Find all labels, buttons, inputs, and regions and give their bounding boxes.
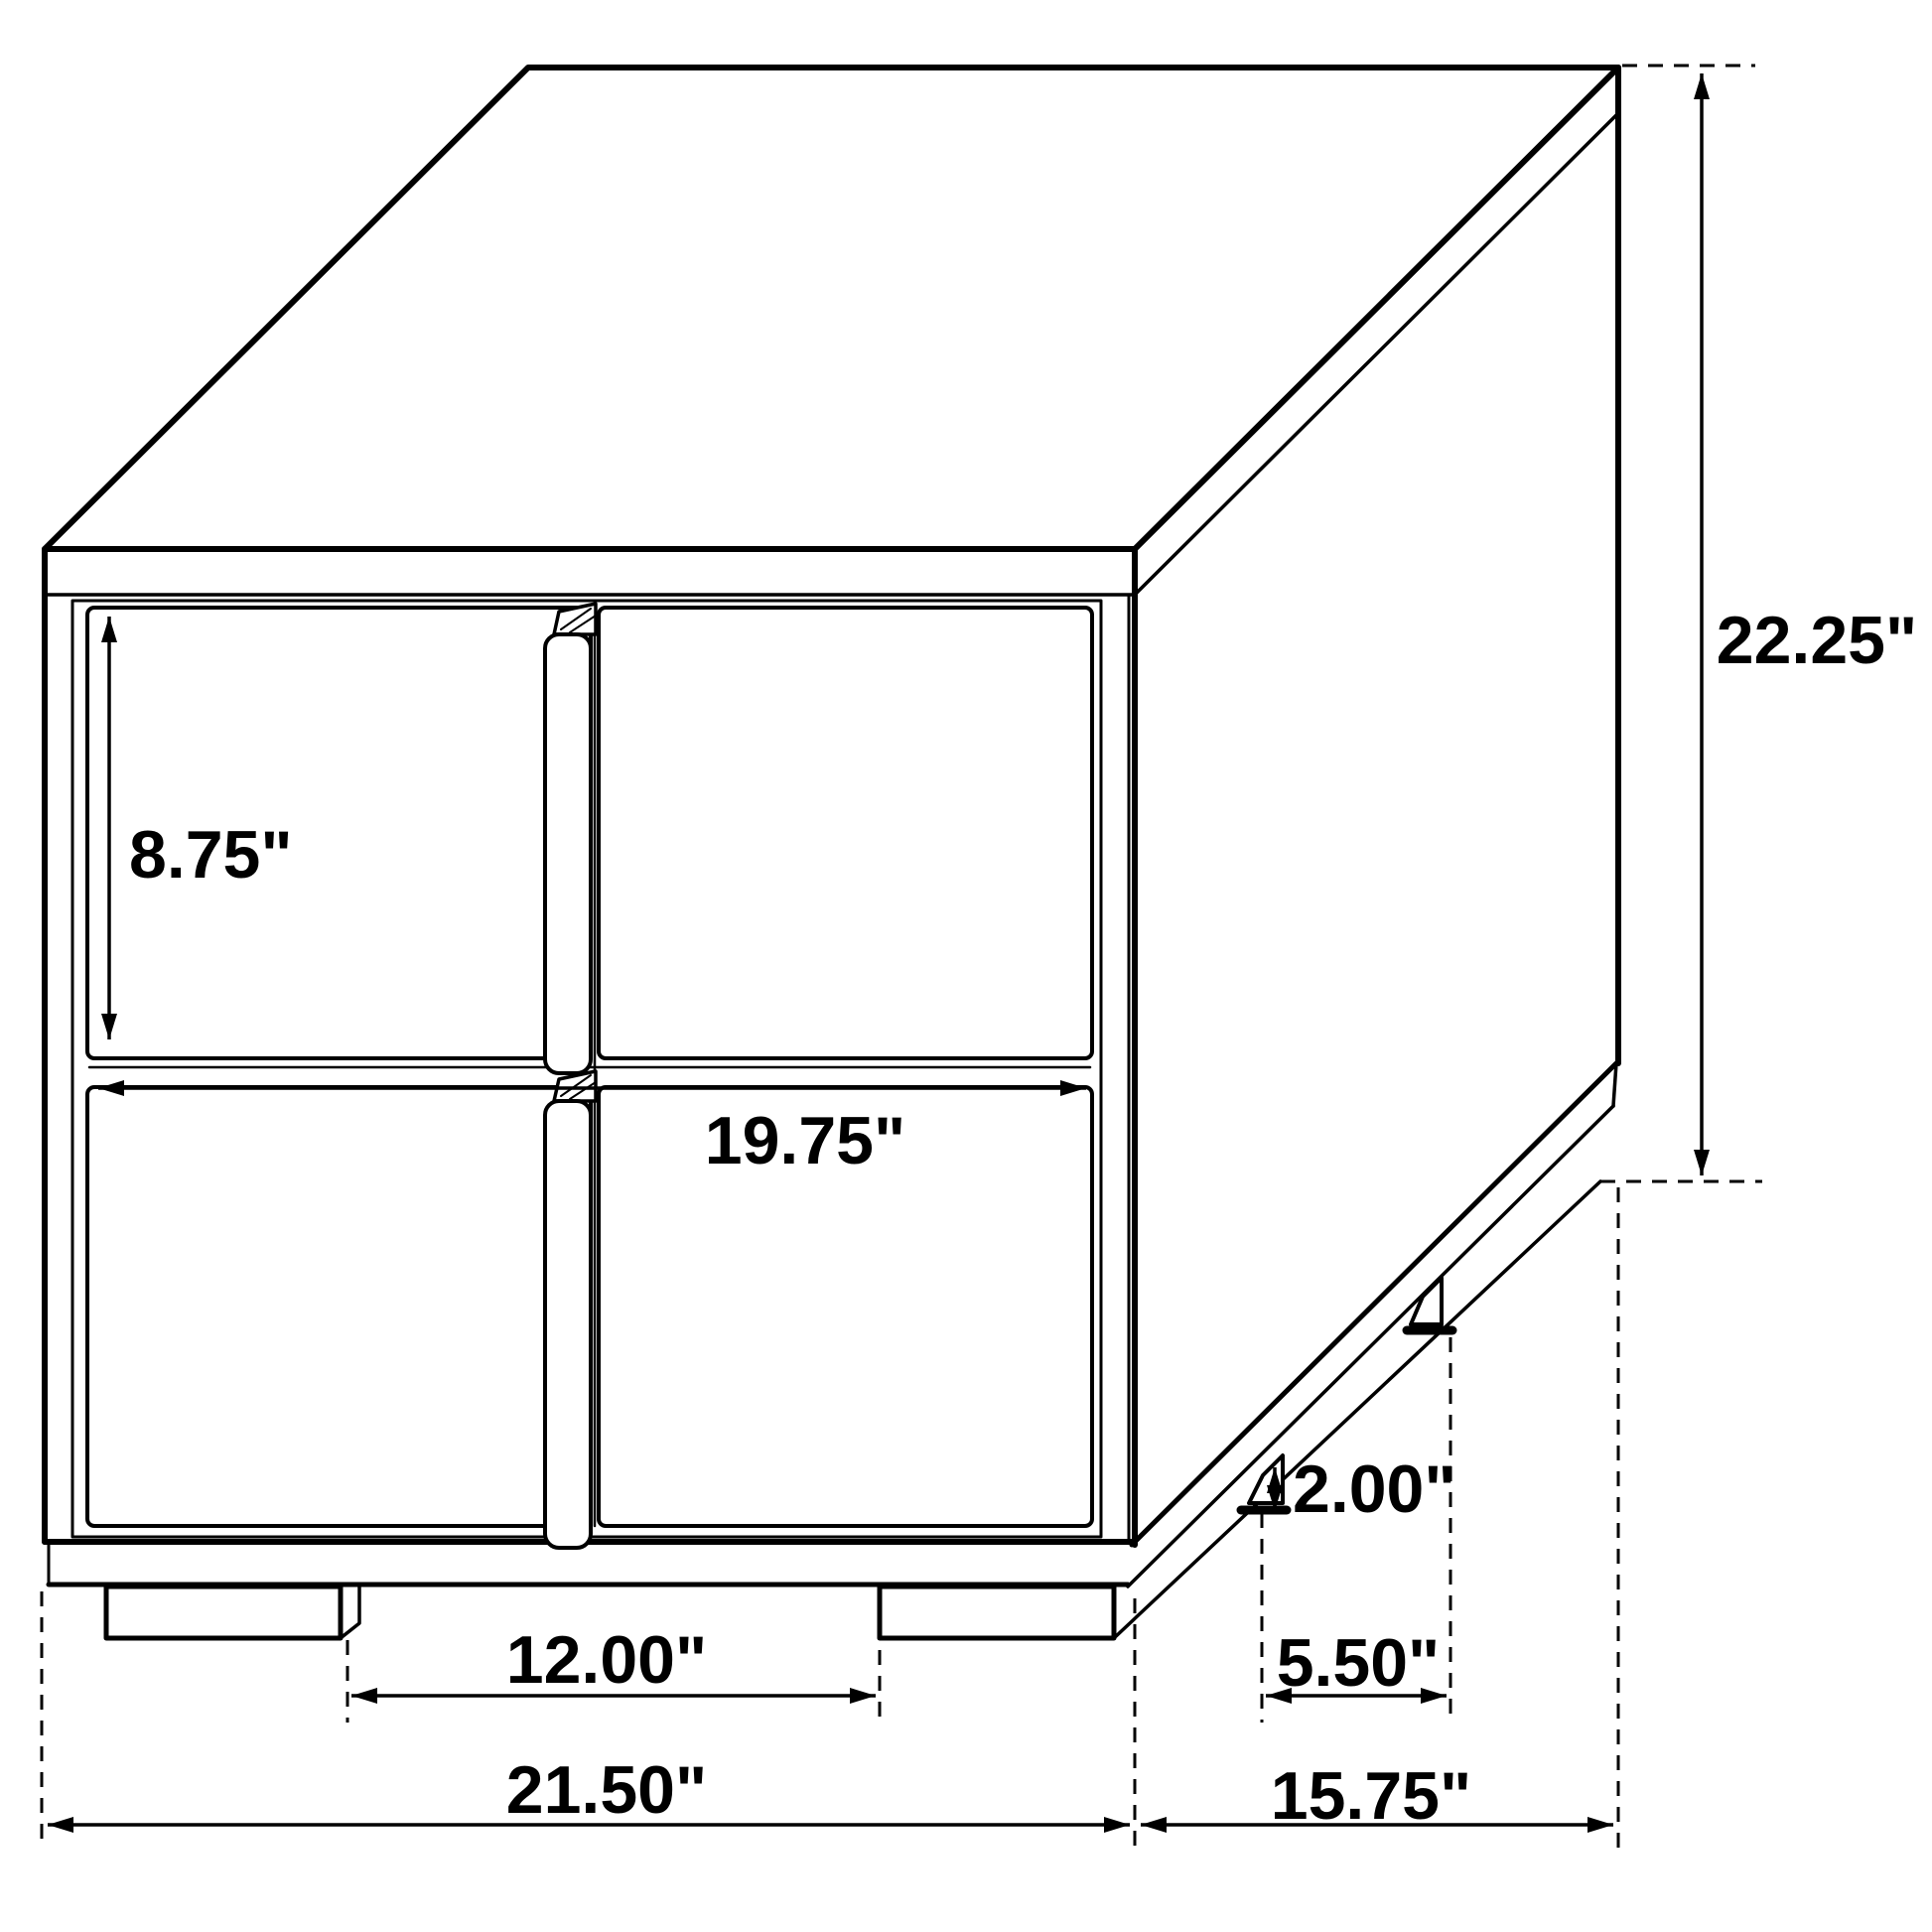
front-left-leg-face xyxy=(106,1587,341,1638)
upper-handle-bar xyxy=(545,634,591,1073)
front-left-leg xyxy=(106,1587,359,1638)
side-front-leg xyxy=(1241,1455,1287,1510)
label-overall-width: 21.50" xyxy=(506,1752,707,1828)
label-overall-height: 22.25" xyxy=(1717,603,1917,678)
lower-handle-bar xyxy=(545,1101,591,1548)
dimension-drawing-page: 8.75" 19.75" 22.25" 2.00" 12.00" 5.50" 2… xyxy=(0,0,1932,1932)
side-bottom-rail-back-connector xyxy=(1613,1063,1616,1106)
front-left-leg-side-strip xyxy=(341,1587,359,1638)
upper-drawer-handle xyxy=(545,604,596,1073)
base-bottom-diagonal xyxy=(1114,1181,1600,1638)
nightstand-dimension-drawing: 8.75" 19.75" 22.25" 2.00" 12.00" 5.50" 2… xyxy=(0,0,1932,1932)
label-drawer-height: 8.75" xyxy=(129,817,293,893)
label-front-leg-spacing: 12.00" xyxy=(506,1622,707,1698)
drawer-panel-top-right xyxy=(599,608,1092,1058)
label-leg-height: 2.00" xyxy=(1293,1451,1456,1527)
lower-drawer-handle xyxy=(545,1071,596,1548)
label-side-leg-spacing: 5.50" xyxy=(1277,1625,1441,1701)
top-panel xyxy=(45,68,1618,549)
drawer-panel-bottom-left xyxy=(87,1087,591,1526)
label-overall-depth: 15.75" xyxy=(1271,1758,1471,1834)
label-drawer-width: 19.75" xyxy=(705,1103,905,1178)
front-right-leg xyxy=(880,1587,1114,1638)
